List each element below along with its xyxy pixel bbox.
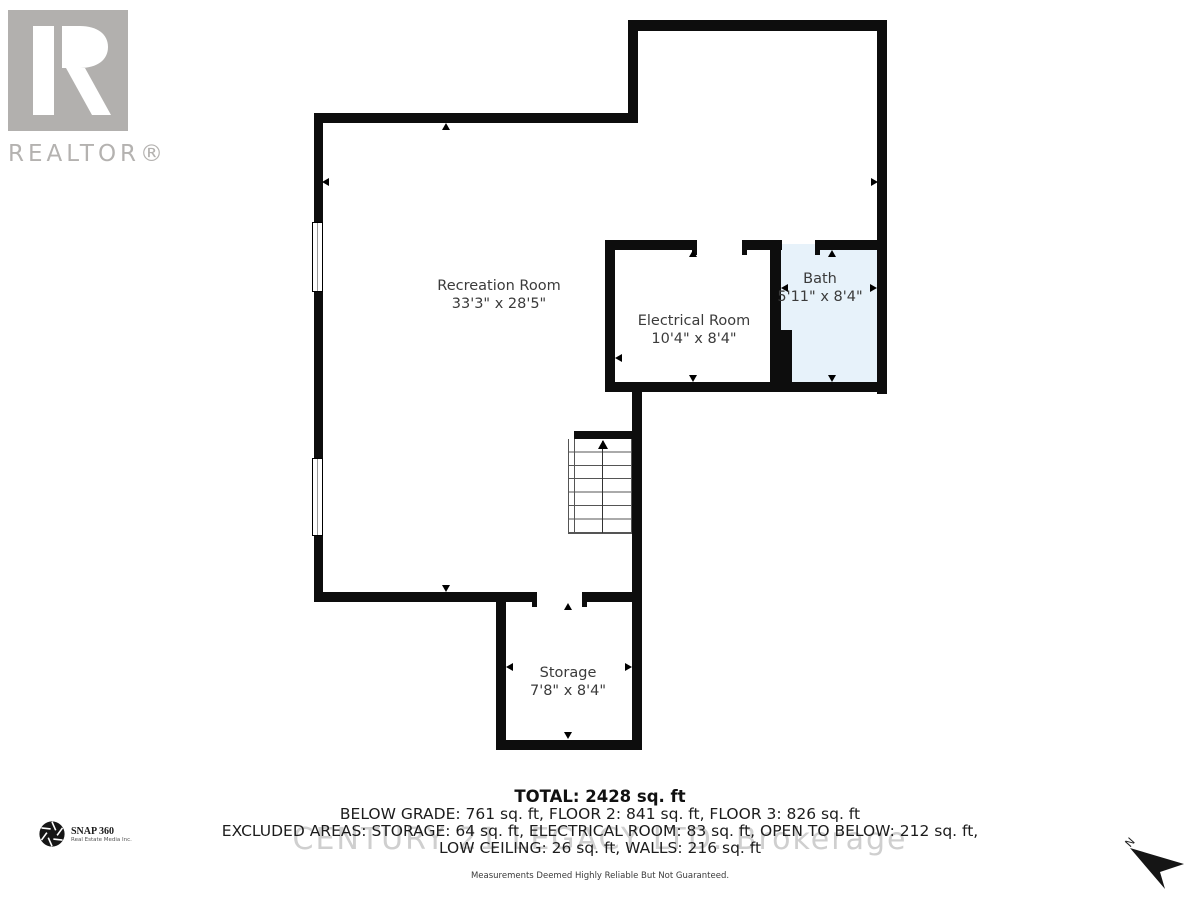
dimension-arrow <box>871 178 878 186</box>
wall <box>770 330 792 386</box>
window <box>312 458 323 536</box>
stair-stringer-line <box>574 439 575 534</box>
excluded-areas: EXCLUDED AREAS: STORAGE: 64 sq. ft, ELEC… <box>0 823 1200 840</box>
stair-up-arrow-icon <box>598 440 608 449</box>
bath-floor-fill <box>781 244 877 384</box>
area-summary: TOTAL: 2428 sq. ft BELOW GRADE: 761 sq. … <box>0 788 1200 881</box>
room-dims: 10'4" x 8'4" <box>638 330 751 348</box>
wall <box>820 240 877 250</box>
stair-top-wall <box>574 431 633 439</box>
total-area: TOTAL: 2428 sq. ft <box>0 788 1200 806</box>
dimension-arrow <box>870 284 877 292</box>
door-frame-tick <box>532 592 537 607</box>
excluded-areas-2: LOW CEILING: 26 sq. ft, WALLS: 216 sq. f… <box>0 840 1200 857</box>
dimension-arrow <box>689 375 697 382</box>
wall <box>605 240 697 250</box>
room-name: Bath <box>777 270 862 288</box>
wall <box>605 382 877 392</box>
window <box>312 222 323 292</box>
wall <box>877 20 887 394</box>
dimension-arrow <box>322 178 329 186</box>
wall <box>605 240 615 392</box>
dimension-arrow <box>828 375 836 382</box>
floor-plan-page: REALTOR® <box>0 0 1200 900</box>
realtor-logo: REALTOR® <box>8 10 148 167</box>
dimension-arrow <box>564 732 572 739</box>
dimension-arrow <box>615 354 622 362</box>
room-dims: 5'11" x 8'4" <box>777 288 862 306</box>
staircase <box>568 431 633 534</box>
room-name: Recreation Room <box>437 277 560 295</box>
room-label-storage: Storage 7'8" x 8'4" <box>530 664 606 700</box>
door-frame-tick <box>815 240 820 255</box>
wall <box>496 592 506 750</box>
disclaimer-text: Measurements Deemed Highly Reliable But … <box>0 871 1200 881</box>
dimension-arrow <box>625 663 632 671</box>
realtor-wordmark: REALTOR® <box>8 141 148 167</box>
dimension-arrow <box>442 585 450 592</box>
dimension-arrow <box>689 250 697 257</box>
room-label-recreation: Recreation Room 33'3" x 28'5" <box>437 277 560 313</box>
dimension-arrow <box>828 250 836 257</box>
wall <box>628 20 638 123</box>
floor-areas: BELOW GRADE: 761 sq. ft, FLOOR 2: 841 sq… <box>0 806 1200 823</box>
dimension-arrow <box>564 603 572 610</box>
room-dims: 7'8" x 8'4" <box>530 682 606 700</box>
door-frame-tick <box>582 592 587 607</box>
dimension-arrow <box>442 123 450 130</box>
wall <box>632 392 642 750</box>
room-label-bath: Bath 5'11" x 8'4" <box>777 270 862 306</box>
wall <box>314 113 638 123</box>
wall <box>628 20 887 31</box>
realtor-r-icon <box>8 10 128 131</box>
room-label-electrical: Electrical Room 10'4" x 8'4" <box>638 312 751 348</box>
room-name: Electrical Room <box>638 312 751 330</box>
room-name: Storage <box>530 664 606 682</box>
dimension-arrow <box>506 663 513 671</box>
stair-treads <box>568 439 632 534</box>
room-dims: 33'3" x 28'5" <box>437 295 560 313</box>
wall <box>496 740 642 750</box>
door-frame-tick <box>742 240 747 255</box>
stair-direction-line <box>602 441 603 533</box>
